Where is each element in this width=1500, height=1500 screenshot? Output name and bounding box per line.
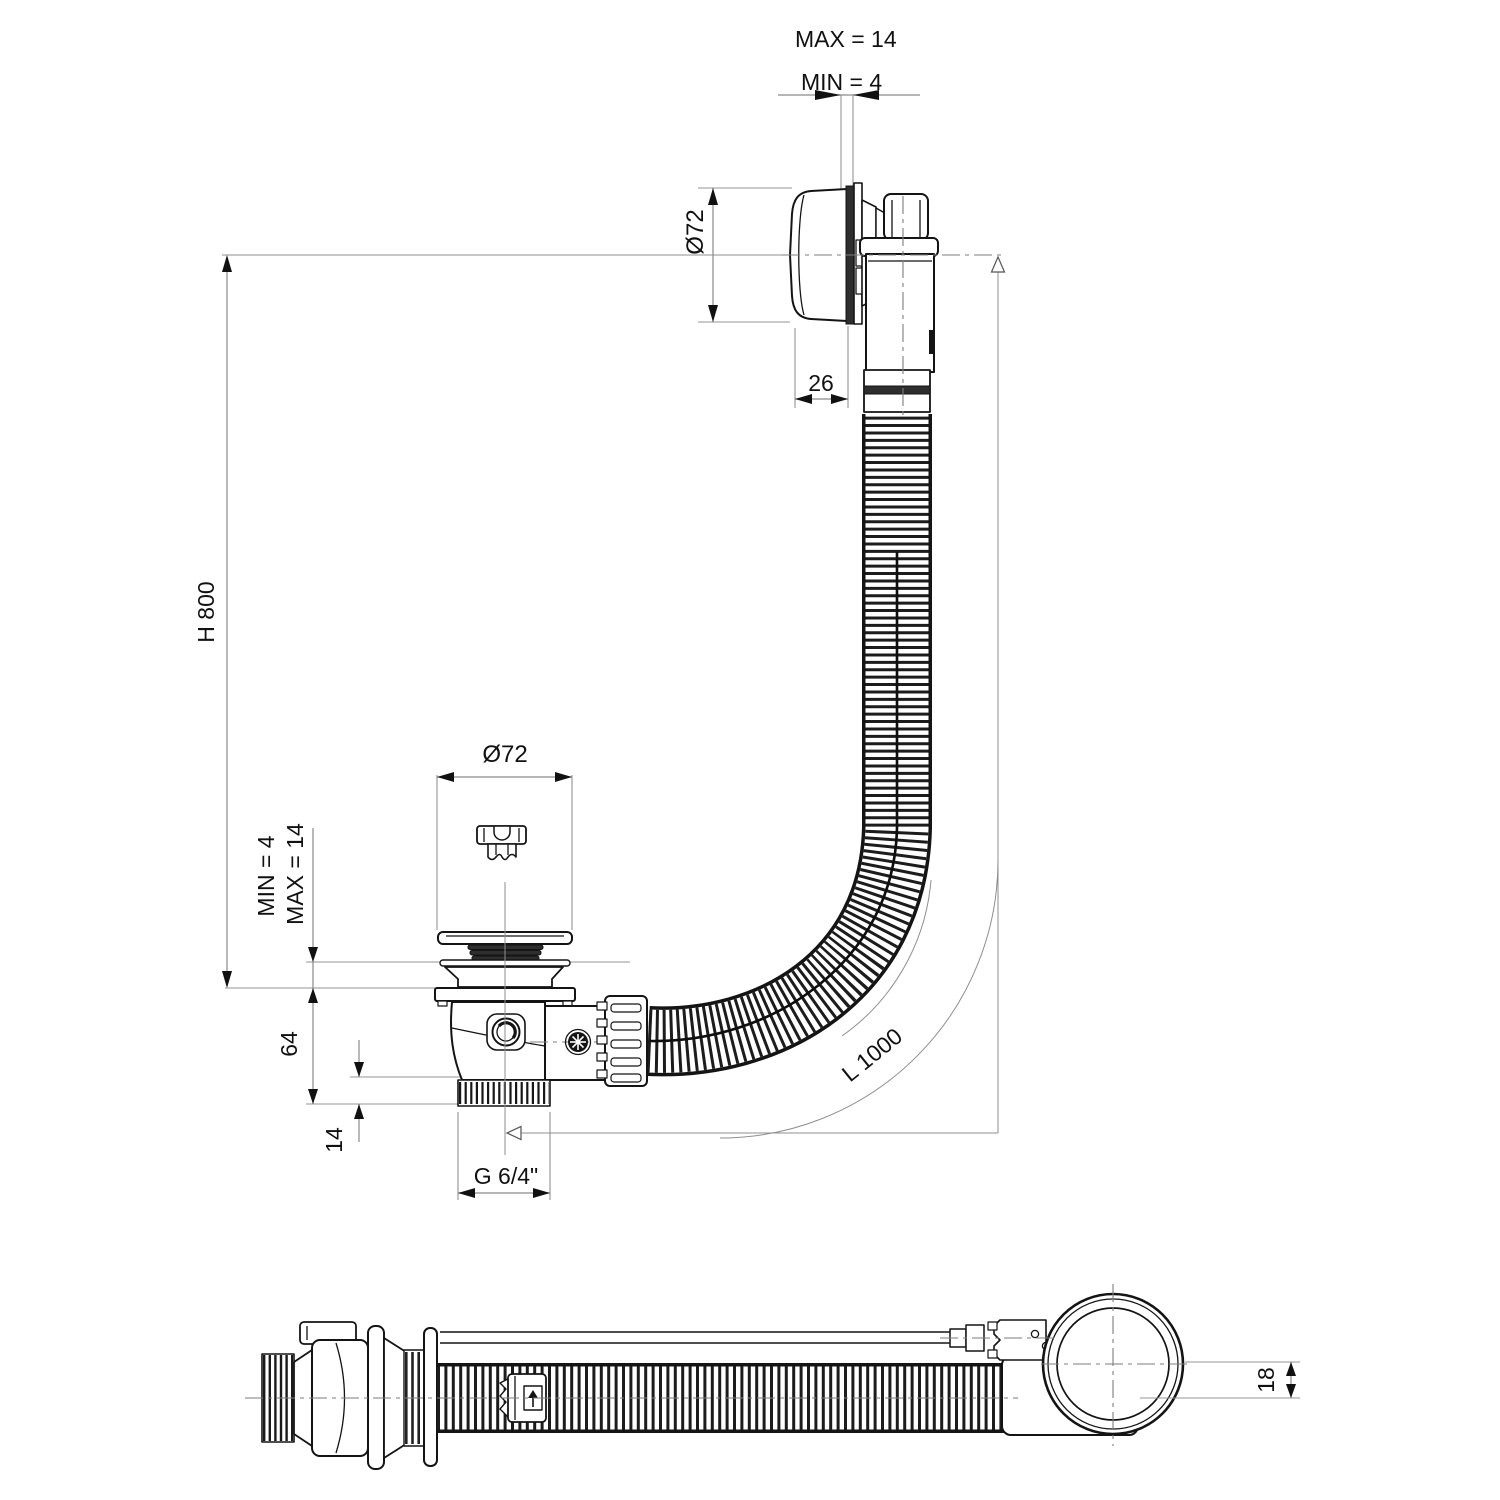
label-overflow-depth: 26 [808, 370, 834, 396]
label-floor-min: MIN = 4 [253, 835, 279, 916]
flexible-hose [648, 414, 897, 1041]
label-top-max: MAX = 14 [795, 26, 897, 52]
label-body-height: 64 [276, 1031, 302, 1057]
datum-triangle-up [992, 257, 1005, 272]
label-axis-offset: 18 [1253, 1367, 1279, 1393]
cable-housing [884, 194, 928, 240]
technical-drawing-page: MAX = 14 MIN = 4 Ø72 26 H 800 Ø72 MIN = … [0, 0, 1500, 1500]
label-overflow-diameter: Ø72 [682, 209, 709, 254]
body-notch [929, 330, 935, 354]
dimension-labels: MAX = 14 MIN = 4 Ø72 26 H 800 Ø72 MIN = … [193, 26, 1279, 1393]
cable-connector [994, 1320, 1046, 1360]
flange-plate-2 [424, 1328, 437, 1466]
label-drain-diameter: Ø72 [482, 741, 527, 768]
side-view [262, 1294, 1183, 1469]
plug-clip [477, 826, 526, 860]
overflow-body [866, 254, 934, 372]
label-thread-size: G 6/4" [474, 1163, 538, 1189]
technical-drawing: MAX = 14 MIN = 4 Ø72 26 H 800 Ø72 MIN = … [0, 0, 1500, 1500]
label-height: H 800 [193, 581, 219, 642]
centerlines [245, 196, 1188, 1446]
drain-thread [458, 1080, 550, 1106]
drain-flange [445, 967, 563, 987]
label-top-min: MIN = 4 [801, 69, 882, 95]
label-floor-max: MAX = 14 [282, 823, 308, 925]
hose-nut [597, 996, 647, 1086]
datum-triangle-left [507, 1127, 521, 1140]
drain-assembly [435, 826, 647, 1106]
label-thread-length: 14 [321, 1127, 347, 1153]
main-view [435, 183, 938, 1106]
